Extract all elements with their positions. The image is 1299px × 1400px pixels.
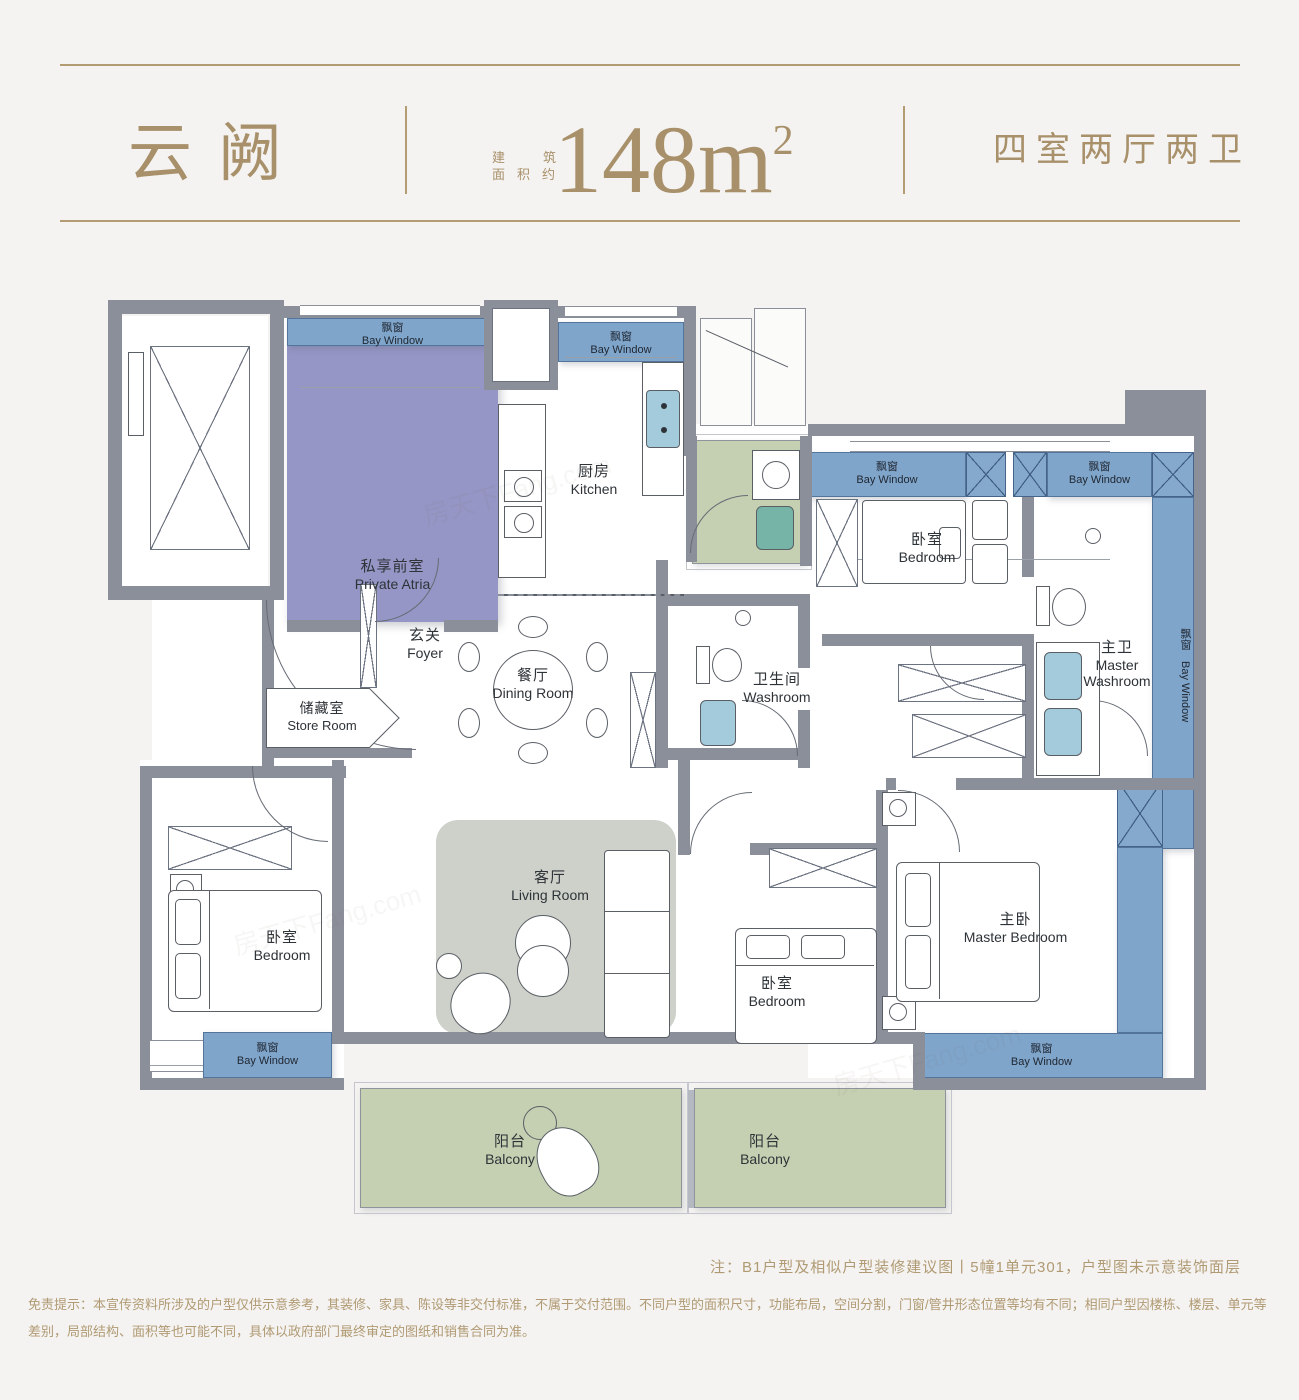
label-store-room: 储藏室 Store Room [264,698,380,733]
plan-note: 注：B1户型及相似户型装修建议图丨5幢1单元301，户型图未示意装饰面层 [710,1256,1241,1277]
window-corner [150,1040,203,1072]
dining-cabinet [630,672,656,768]
coffee-table [517,945,569,997]
header-divider-left [405,106,407,194]
dining-chair [458,708,480,738]
wall [108,586,284,600]
wall [678,756,690,855]
bay-en: Bay Window [287,335,498,347]
floorplan-poster: 云阙 建筑 面积约 148m2 四室两厅两卫 [0,0,1299,1400]
wall [684,306,696,456]
label-master-bedroom: 主卧 Master Bedroom [958,908,1073,945]
wall [920,1078,1206,1090]
header-divider-right [903,106,905,194]
area-label-line1: 建筑 [492,149,558,166]
shaft-inner [492,308,550,382]
area-label-line2: 面积约 [492,166,558,183]
washroom-sink [700,700,736,746]
shower-head-symbol [1085,528,1101,544]
label-washroom: 卫生间 Washroom [712,668,842,705]
kitchen-sink [646,390,680,448]
toilet-tank [696,646,710,684]
dining-chair [518,616,548,638]
wall [1022,634,1034,790]
wardrobe-bedroom-tr [816,499,858,587]
wardrobe-bedroom-bl [168,826,292,870]
side-table [436,953,462,979]
bay-window-southeast-vertical [1117,847,1163,1033]
master-toilet-tank [1036,586,1050,626]
label-bedroom-tr: 卧室 Bedroom [862,528,992,565]
label-bay-window: 飘窗 Bay Window [558,328,684,356]
shower-head-symbol [735,610,751,626]
wall [108,300,122,600]
wall [800,436,812,566]
window-strip [300,305,480,316]
bay-pillar-1 [966,452,1006,497]
label-dining: 餐厅 Dining Room [463,664,603,701]
wall [140,1078,344,1090]
wall [678,843,690,855]
stove-burner [504,506,542,538]
wall-bedroom-tr [822,634,1034,646]
laundry-sink [756,506,794,550]
label-private-atria: 私享前室 Private Atria [287,555,498,592]
label-bay-window: 飘窗 Bay Window [203,1039,332,1067]
area-value: 148 [554,106,698,213]
label-bay-window: 飘窗 Bay Window [287,319,498,347]
area-superscript: 2 [773,118,794,164]
header-top-rule [60,64,1240,66]
label-foyer: 玄关 Foyer [350,624,500,661]
master-toilet-bowl [1052,588,1086,626]
disclaimer: 免责提示：本宣传资料所涉及的户型仅供示意参考，其装修、家具、陈设等非交付标准，不… [28,1292,1276,1345]
wall [656,560,668,768]
dining-chair [586,708,608,738]
wardrobe-bedroom-mid [769,848,877,888]
plan-title: 云阙 [128,102,308,194]
master-sink-2 [1044,708,1082,756]
flue-shaft-1 [700,318,752,426]
bay-pillar-4 [1117,780,1163,847]
washing-machine [752,450,800,500]
wall [1022,497,1034,577]
window-strip [565,306,677,317]
wall [798,594,810,668]
label-balcony-1: 阳台 Balcony [445,1130,575,1167]
wall [886,778,896,790]
window-strip [850,441,1110,452]
label-bedroom-mid: 卧室 Bedroom [707,972,847,1009]
flue-shaft-2 [754,308,806,426]
corridor-closet-2 [912,714,1026,758]
bay-pillar-2 [1013,452,1047,497]
label-bay-window: 飘窗 Bay Window [808,458,966,486]
layout-type: 四室两厅两卫 [993,122,1251,171]
area-figure: 148m2 [554,86,794,215]
label-bay-window: 飘窗 Bay Window [1047,458,1152,486]
label-balcony-2: 阳台 Balcony [700,1130,830,1167]
wall-right-exterior [1194,424,1206,1084]
balcony-divider [688,1090,694,1208]
wall [108,300,284,314]
elevator-rail [128,352,144,436]
elevator-cab [150,346,250,550]
area-label: 建筑 面积约 [492,149,558,183]
area-unit: m [698,106,773,213]
dining-chair [518,742,548,764]
label-living-room: 客厅 Living Room [470,866,630,903]
bay-pillar-3 [1152,452,1194,497]
header-bottom-rule [60,220,1240,222]
bay-zh: 飘窗 [287,319,498,335]
kitchen-sliding-door [498,594,690,596]
label-master-washroom: 主卫 Master Washroom [1062,636,1172,689]
wall [270,300,284,600]
wall [262,748,412,758]
